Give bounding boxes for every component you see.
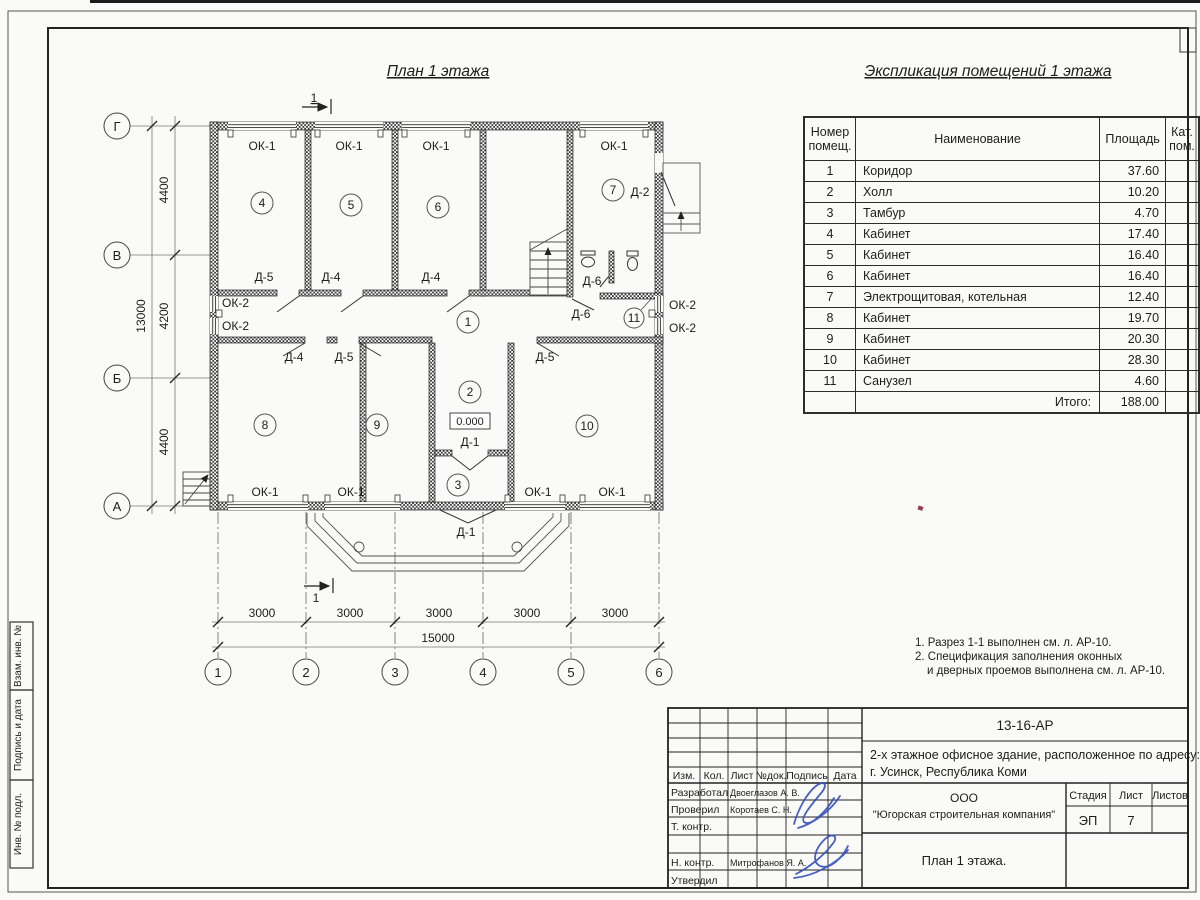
table-row: 4Кабинет17.40 (804, 224, 1199, 245)
table-row: 7Электрощитовая, котельная12.40 (804, 287, 1199, 308)
dim-v-total: 13000 (134, 299, 148, 333)
interior-walls (218, 130, 663, 502)
table-title: Экспликация помещений 1 этажа (864, 63, 1111, 80)
axis-col-2: 2 (302, 665, 309, 680)
exterior-landing-right (663, 163, 700, 233)
titleblock-sheet-label: Лист (1119, 790, 1143, 802)
svg-text:ОК-1: ОК-1 (601, 139, 628, 153)
table-header-name: Наименование (855, 117, 1099, 161)
dim-h-total: 15000 (421, 631, 455, 645)
table-row: 3Тамбур4.70 (804, 203, 1199, 224)
svg-text:Митрофанов Я. А.: Митрофанов Я. А. (730, 858, 806, 868)
svg-text:1: 1 (465, 315, 472, 329)
svg-text:Двоеглазов А. В.: Двоеглазов А. В. (730, 788, 800, 798)
drawing-sheet: Взам. инв. № Подпись и дата Инв. № подл.… (0, 0, 1200, 900)
svg-text:Проверил: Проверил (671, 804, 719, 816)
svg-text:ОК-1: ОК-1 (423, 139, 450, 153)
svg-text:ОК-1: ОК-1 (252, 485, 279, 499)
dim-h-4: 3000 (514, 606, 541, 620)
svg-text:Д-6: Д-6 (572, 307, 591, 321)
svg-text:0.000: 0.000 (456, 416, 484, 428)
room-schedule-table: Номер помещ. Наименование Площадь Кат. п… (803, 116, 1200, 414)
margin-box-label-podpis: Подпись и дата (13, 699, 24, 771)
svg-text:Д-1: Д-1 (457, 525, 476, 539)
table-row: 1Коридор37.60 (804, 161, 1199, 182)
svg-text:Утвердил: Утвердил (671, 875, 718, 887)
dim-h-1: 3000 (249, 606, 276, 620)
table-row: 10Кабинет28.30 (804, 350, 1199, 371)
axis-row-v: В (113, 248, 122, 263)
table-row: 6Кабинет16.40 (804, 266, 1199, 287)
titleblock-stage-label: Стадия (1069, 790, 1107, 802)
svg-text:Коротаев С. Н.: Коротаев С. Н. (730, 805, 792, 815)
svg-text:Д-5: Д-5 (255, 270, 274, 284)
svg-text:ОК-1: ОК-1 (525, 485, 552, 499)
internal-stair (530, 229, 567, 295)
svg-text:5: 5 (348, 198, 355, 212)
plan-title: План 1 этажа (387, 63, 490, 80)
svg-text:№док.: №док. (756, 770, 787, 782)
svg-text:1: 1 (311, 91, 318, 105)
table-header-area: Площадь (1100, 117, 1166, 161)
table-total-label: Итого: (855, 392, 1099, 414)
svg-text:ОК-1: ОК-1 (338, 485, 365, 499)
sink-icon (581, 251, 595, 267)
svg-text:1. Разрез 1-1 выполнен см. л.: 1. Разрез 1-1 выполнен см. л. АР-10. (915, 637, 1112, 649)
titleblock-project-line2: г. Усинск, Республика Коми (870, 765, 1027, 779)
svg-text:Д-6: Д-6 (583, 274, 602, 288)
svg-text:ОК-2: ОК-2 (669, 298, 696, 312)
svg-text:ОК-1: ОК-1 (249, 139, 276, 153)
svg-text:ОК-2: ОК-2 (669, 321, 696, 335)
door-labels: Д-5 Д-4 Д-4 Д-2 Д-6 Д-6 Д-4 Д-5 Д-5 Д-1 … (255, 185, 650, 539)
red-speck (917, 505, 923, 510)
titleblock-project-line1: 2-х этажное офисное здание, расположенно… (870, 748, 1200, 762)
svg-text:3: 3 (455, 478, 462, 492)
svg-text:11: 11 (628, 311, 641, 325)
svg-text:Разработал: Разработал (671, 787, 728, 799)
svg-text:Д-5: Д-5 (536, 350, 555, 364)
toilet-icon (627, 251, 638, 271)
axis-col-6: 6 (655, 665, 662, 680)
entrance-porch (307, 513, 569, 571)
dim-h-2: 3000 (337, 606, 364, 620)
col-axis-bubbles (205, 659, 672, 685)
table-row: 2Холл10.20 (804, 182, 1199, 203)
dim-v-1: 4400 (157, 176, 171, 203)
elevation-mark: 0.000 (450, 413, 490, 429)
axis-col-4: 4 (479, 665, 486, 680)
window-labels: ОК-1 ОК-1 ОК-1 ОК-1 ОК-1 ОК-1 ОК-1 ОК-1 … (222, 139, 696, 499)
svg-text:Д-1: Д-1 (461, 435, 480, 449)
table-row: 5Кабинет16.40 (804, 245, 1199, 266)
svg-text:7: 7 (610, 183, 617, 197)
svg-text:6: 6 (435, 200, 442, 214)
svg-text:и дверных проемов выполнена см: и дверных проемов выполнена см. л. АР-10… (927, 665, 1165, 677)
table-row: 9Кабинет20.30 (804, 329, 1199, 350)
axis-col-5: 5 (567, 665, 574, 680)
svg-text:Д-4: Д-4 (322, 270, 341, 284)
exterior-stair-left (183, 472, 210, 506)
titleblock-sheets-label: Листов (1152, 790, 1188, 802)
titleblock-sheet-value: 7 (1127, 813, 1134, 828)
dim-v-3: 4400 (157, 428, 171, 455)
dim-h-5: 3000 (602, 606, 629, 620)
svg-text:Изм.: Изм. (673, 770, 696, 782)
svg-text:Д-4: Д-4 (285, 350, 304, 364)
svg-text:ОК-1: ОК-1 (599, 485, 626, 499)
svg-text:ОК-2: ОК-2 (222, 319, 249, 333)
notes: 1. Разрез 1-1 выполнен см. л. АР-10. 2. … (915, 637, 1165, 677)
svg-text:Н. контр.: Н. контр. (671, 857, 714, 869)
svg-text:Подпись: Подпись (786, 770, 828, 782)
windows-top-wall (228, 122, 648, 137)
svg-text:ОК-2: ОК-2 (222, 296, 249, 310)
titleblock-drawing-title: План 1 этажа. (922, 853, 1007, 868)
table-header-cat: Кат. пом. (1166, 117, 1199, 161)
titleblock-stage-value: ЭП (1079, 813, 1098, 828)
axis-col-3: 3 (391, 665, 398, 680)
titleblock-company-line2: "Югорская строительная компания" (873, 809, 1056, 821)
dim-v-2: 4200 (157, 302, 171, 329)
svg-text:4: 4 (259, 196, 266, 210)
axis-col-1: 1 (214, 665, 221, 680)
axis-row-g: Г (113, 119, 120, 134)
table-row: 8Кабинет19.70 (804, 308, 1199, 329)
table-total-value: 188.00 (1100, 392, 1166, 414)
svg-text:Д-2: Д-2 (631, 185, 650, 199)
svg-text:2: 2 (467, 385, 474, 399)
section-mark-bottom: 1 (304, 578, 333, 605)
windows-side-walls (210, 296, 663, 334)
dim-h-3: 3000 (426, 606, 453, 620)
table-total-row: Итого: 188.00 (804, 392, 1199, 414)
axis-row-b: Б (113, 371, 122, 386)
svg-text:Д-4: Д-4 (422, 270, 441, 284)
titleblock-company-line1: ООО (950, 791, 978, 805)
svg-text:Лист: Лист (731, 770, 754, 782)
svg-text:8: 8 (262, 418, 269, 432)
svg-text:Д-5: Д-5 (335, 350, 354, 364)
svg-text:9: 9 (374, 418, 381, 432)
svg-text:Кол.: Кол. (704, 770, 725, 782)
row-axis-bubbles (104, 113, 130, 519)
svg-text:Т. контр.: Т. контр. (671, 821, 712, 833)
margin-box-label-vzam: Взам. инв. № (13, 625, 24, 687)
section-mark-top: 1 (302, 91, 331, 114)
svg-text:2. Спецификация заполнения око: 2. Спецификация заполнения оконных (915, 651, 1122, 663)
table-row: 11Санузел4.60 (804, 371, 1199, 392)
table-header-num: Номер помещ. (804, 117, 855, 161)
svg-text:10: 10 (580, 419, 594, 433)
axis-row-a: А (113, 499, 122, 514)
svg-text:1: 1 (313, 591, 320, 605)
margin-box-label-inv: Инв. № подл. (13, 793, 24, 855)
svg-text:ОК-1: ОК-1 (336, 139, 363, 153)
titleblock-doc-number: 13-16-АР (996, 718, 1053, 733)
svg-text:Дата: Дата (833, 770, 856, 782)
